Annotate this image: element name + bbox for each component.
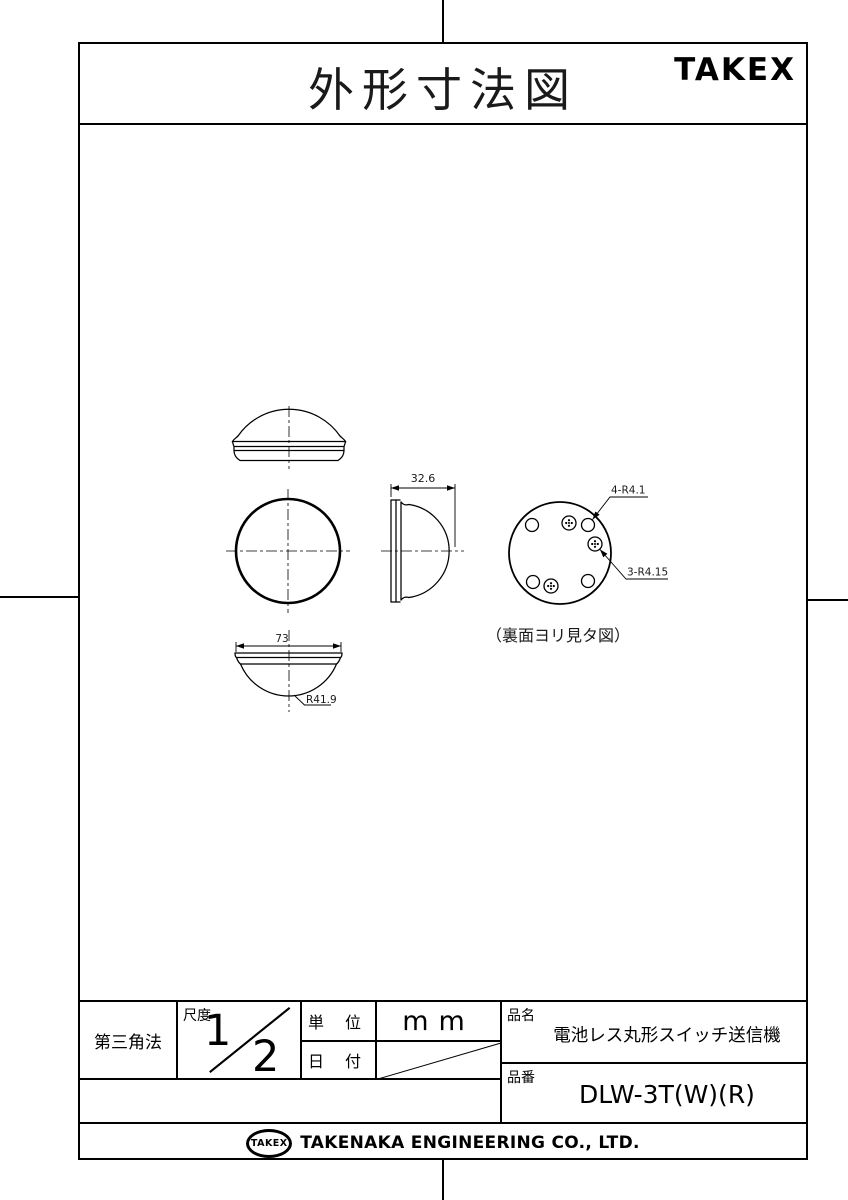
date-label-cell: 日 付 — [302, 1042, 377, 1080]
round-holes-label: 4-R4.1 — [611, 485, 645, 497]
round-hole — [526, 519, 539, 532]
screw-hole — [588, 537, 602, 551]
center-mark-right — [807, 599, 848, 601]
screw-holes-label: 3-R4.15 — [627, 567, 668, 579]
date-value-cell — [377, 1042, 502, 1080]
drawing-sheet: 外形寸法図 TAKEX — [0, 0, 848, 1200]
center-mark-left — [0, 596, 79, 598]
view-bottom: 73 R41.9 — [235, 630, 342, 712]
center-mark-top — [442, 0, 444, 43]
part-number-cell: 品番 DLW-3T(W)(R) — [502, 1064, 806, 1122]
projection-label: 第三角法 — [94, 1028, 162, 1053]
round-hole — [582, 519, 595, 532]
dim-radius-label: R41.9 — [306, 694, 337, 706]
product-name-label: 品名 — [507, 1005, 535, 1025]
product-name-cell: 品名 電池レス丸形スイッチ送信機 — [502, 1002, 806, 1064]
dim-depth-label: 32.6 — [411, 472, 436, 485]
view-front-circle — [226, 489, 350, 613]
round-hole — [582, 575, 595, 588]
part-number-value: DLW-3T(W)(R) — [532, 1080, 802, 1109]
center-mark-bottom — [442, 1159, 444, 1200]
projection-cell: 第三角法 — [80, 1002, 178, 1080]
view-side-profile: 32.6 — [381, 472, 464, 602]
scale-slash — [178, 1002, 300, 1078]
unit-label: 単 位 — [308, 1009, 369, 1033]
dim-width-label: 73 — [275, 633, 288, 645]
title-block: 第三角法 尺度 1 2 単 位 mm 日 付 品名 電 — [80, 1000, 806, 1160]
date-label: 日 付 — [308, 1048, 369, 1072]
empty-row-cell — [80, 1080, 502, 1122]
company-name: TAKENAKA ENGINEERING CO., LTD. — [300, 1133, 640, 1153]
part-number-label: 品番 — [507, 1067, 535, 1087]
dimension-drawing: 32.6 — [80, 127, 806, 1000]
view-top-elevation — [233, 406, 346, 469]
view-back: 4-R4.1 3-R4.15 （裏面ヨリ見タ図） — [486, 485, 668, 646]
brand-logo-text: TAKEX — [674, 52, 796, 88]
drawing-frame: 外形寸法図 TAKEX — [78, 42, 808, 1160]
screw-hole — [562, 516, 576, 530]
unit-value: mm — [402, 1006, 475, 1037]
back-view-caption: （裏面ヨリ見タ図） — [486, 626, 630, 645]
unit-value-cell: mm — [377, 1002, 502, 1042]
title-band: 外形寸法図 TAKEX — [80, 44, 806, 125]
round-hole — [527, 576, 540, 589]
product-name-value: 電池レス丸形スイッチ送信機 — [532, 1022, 802, 1047]
takex-oval-logo: TAKEX — [246, 1129, 292, 1158]
scale-cell: 尺度 1 2 — [178, 1002, 302, 1080]
company-footer: TAKEX TAKENAKA ENGINEERING CO., LTD. — [80, 1122, 806, 1162]
screw-hole — [544, 579, 558, 593]
unit-label-cell: 単 位 — [302, 1002, 377, 1042]
blank-cell-slash — [377, 1042, 502, 1080]
